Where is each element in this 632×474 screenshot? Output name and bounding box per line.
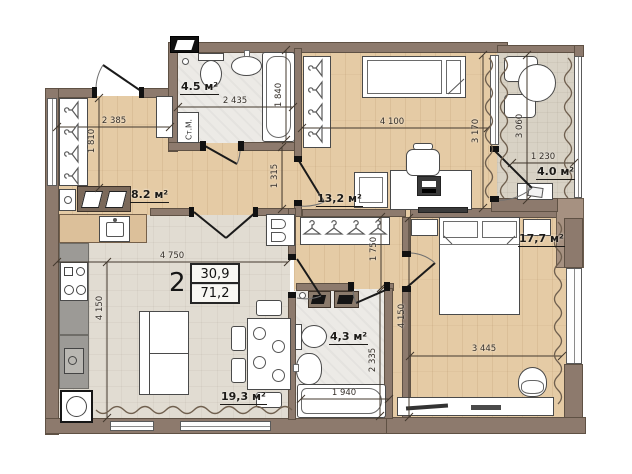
dim-children-width: 4 100 <box>370 117 414 127</box>
bedroom-area-label: 17,7 м² <box>518 232 565 247</box>
bathroom1-lamp <box>182 58 189 65</box>
bedroom-window <box>566 268 582 364</box>
dim-living-depth: 4 150 <box>95 286 105 330</box>
kitchen-counter-lower <box>59 335 89 389</box>
dining-table <box>247 318 291 390</box>
dim-bathroom2-depth: 2 335 <box>368 338 378 382</box>
dim-hallway-width: 2 385 <box>92 116 136 126</box>
bathroom2-area-label: 4,3 м² <box>329 330 368 345</box>
hallway-stool <box>59 189 76 211</box>
living-window-right <box>180 421 271 431</box>
dim-hallway-depth: 1 810 <box>87 119 97 163</box>
bathroom2-shelf-right <box>334 291 359 308</box>
desk-chair-seat <box>406 149 440 176</box>
wall-bathroom1-bottom-b <box>240 142 302 151</box>
vent-shaft <box>170 36 199 53</box>
wall-balcony-bottom <box>491 198 558 212</box>
children-wardrobe <box>303 56 331 148</box>
apartment-total-area-box: 71,2 <box>190 282 240 304</box>
bathroom2-lamp <box>299 292 306 299</box>
dim-children-depth: 3 170 <box>471 109 481 153</box>
apartment-rooms-count: 2 <box>169 268 186 298</box>
sink1-tap <box>244 50 250 57</box>
balcony-box <box>517 183 553 200</box>
nightstand-left <box>411 219 438 236</box>
corridor-cabinet <box>266 214 295 246</box>
bathroom1-area-label: 4.5 м² <box>180 80 219 95</box>
balcony-glazing <box>574 56 582 198</box>
living-window-left <box>110 421 154 431</box>
dim-bathroom1-depth: 1 840 <box>274 73 284 117</box>
floor-plan: Ст.М. <box>0 0 632 474</box>
dim-bathroom1-width: 2 435 <box>213 96 257 106</box>
wall-living-hall-a <box>150 208 193 216</box>
children-balcony-window <box>490 55 499 145</box>
dim-hall-depth: 1 750 <box>369 227 379 271</box>
vent-shaft-symbol <box>174 40 194 50</box>
dim-living-width: 4 750 <box>150 251 194 261</box>
dim-balcony-depth: 3 060 <box>515 104 525 148</box>
bedroom-console <box>397 397 554 416</box>
sofa <box>139 311 189 395</box>
stove <box>60 262 88 301</box>
living-area-label: 19,3 м² <box>220 390 267 405</box>
wall-children-left-a <box>294 48 302 162</box>
dining-chair-left-bottom <box>231 358 246 383</box>
dining-chair-top <box>256 300 282 316</box>
children-area-label: 13,2 м² <box>316 192 363 207</box>
bedroom-pouf <box>518 367 547 397</box>
fridge <box>60 390 93 423</box>
double-bed <box>439 217 520 315</box>
hallway-cabinet <box>156 96 173 138</box>
washing-machine-label: Ст.М. <box>185 111 194 149</box>
wall-top-main <box>168 42 508 53</box>
sink2 <box>296 353 322 385</box>
sink1 <box>231 56 262 76</box>
balcony-area-label: 4.0 м² <box>536 165 575 180</box>
wall-bedroom-right-upper <box>564 218 583 268</box>
wall-children-bottom <box>302 209 406 217</box>
bathroom2-shelf-left <box>308 291 331 308</box>
wall-balcony-top <box>497 45 584 53</box>
kitchen-sink <box>99 216 130 242</box>
sink2-tap <box>293 364 299 372</box>
wall-bedroom-right-lower <box>564 364 583 418</box>
children-bed <box>362 56 466 98</box>
printer <box>417 176 441 196</box>
dim-balcony-width: 1 230 <box>521 152 565 162</box>
dim-bedroom-full-depth: 4 150 <box>397 294 407 338</box>
shoe-cabinet <box>77 186 131 212</box>
hallway-window <box>47 98 57 186</box>
hallway-wardrobe <box>59 98 88 186</box>
wall-bedroom-left-a <box>402 217 411 257</box>
bedroom-tv <box>418 207 468 213</box>
dim-corridor-depth: 1 315 <box>270 154 280 198</box>
wall-bottom-bedroom <box>386 417 586 434</box>
wall-bathroom2-top-a <box>296 283 352 291</box>
toilet2-bowl <box>301 325 327 348</box>
dining-chair-left-top <box>231 326 246 351</box>
dim-bathtub2-width: 1 940 <box>322 388 366 398</box>
balcony-table <box>518 64 556 102</box>
dim-bedroom-width: 3 445 <box>462 344 506 354</box>
hallway-area-label: 8.2 м² <box>130 188 169 203</box>
washing-machine: Ст.М. <box>177 112 199 143</box>
